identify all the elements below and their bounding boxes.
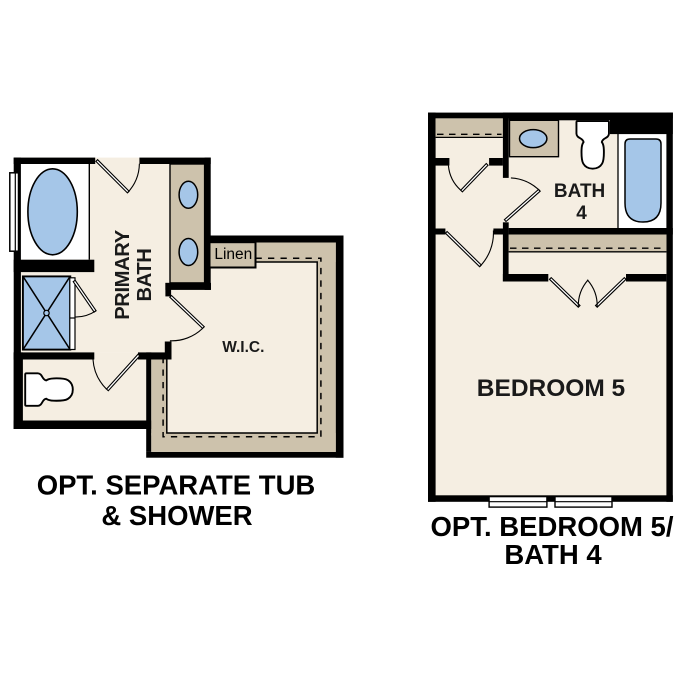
- svg-text:4: 4: [576, 203, 587, 224]
- svg-text:BEDROOM 5: BEDROOM 5: [477, 375, 625, 402]
- svg-text:BATH: BATH: [134, 249, 156, 302]
- svg-text:Linen: Linen: [214, 246, 252, 263]
- svg-text:OPT. SEPARATE TUB: OPT. SEPARATE TUB: [37, 470, 316, 501]
- svg-text:OPT. BEDROOM 5/: OPT. BEDROOM 5/: [431, 511, 674, 542]
- svg-text:PRIMARY: PRIMARY: [112, 229, 134, 319]
- svg-text:BATH: BATH: [554, 181, 605, 202]
- svg-text:W.I.C.: W.I.C.: [222, 339, 264, 356]
- svg-text:BATH 4: BATH 4: [504, 539, 602, 570]
- svg-text:& SHOWER: & SHOWER: [101, 500, 252, 531]
